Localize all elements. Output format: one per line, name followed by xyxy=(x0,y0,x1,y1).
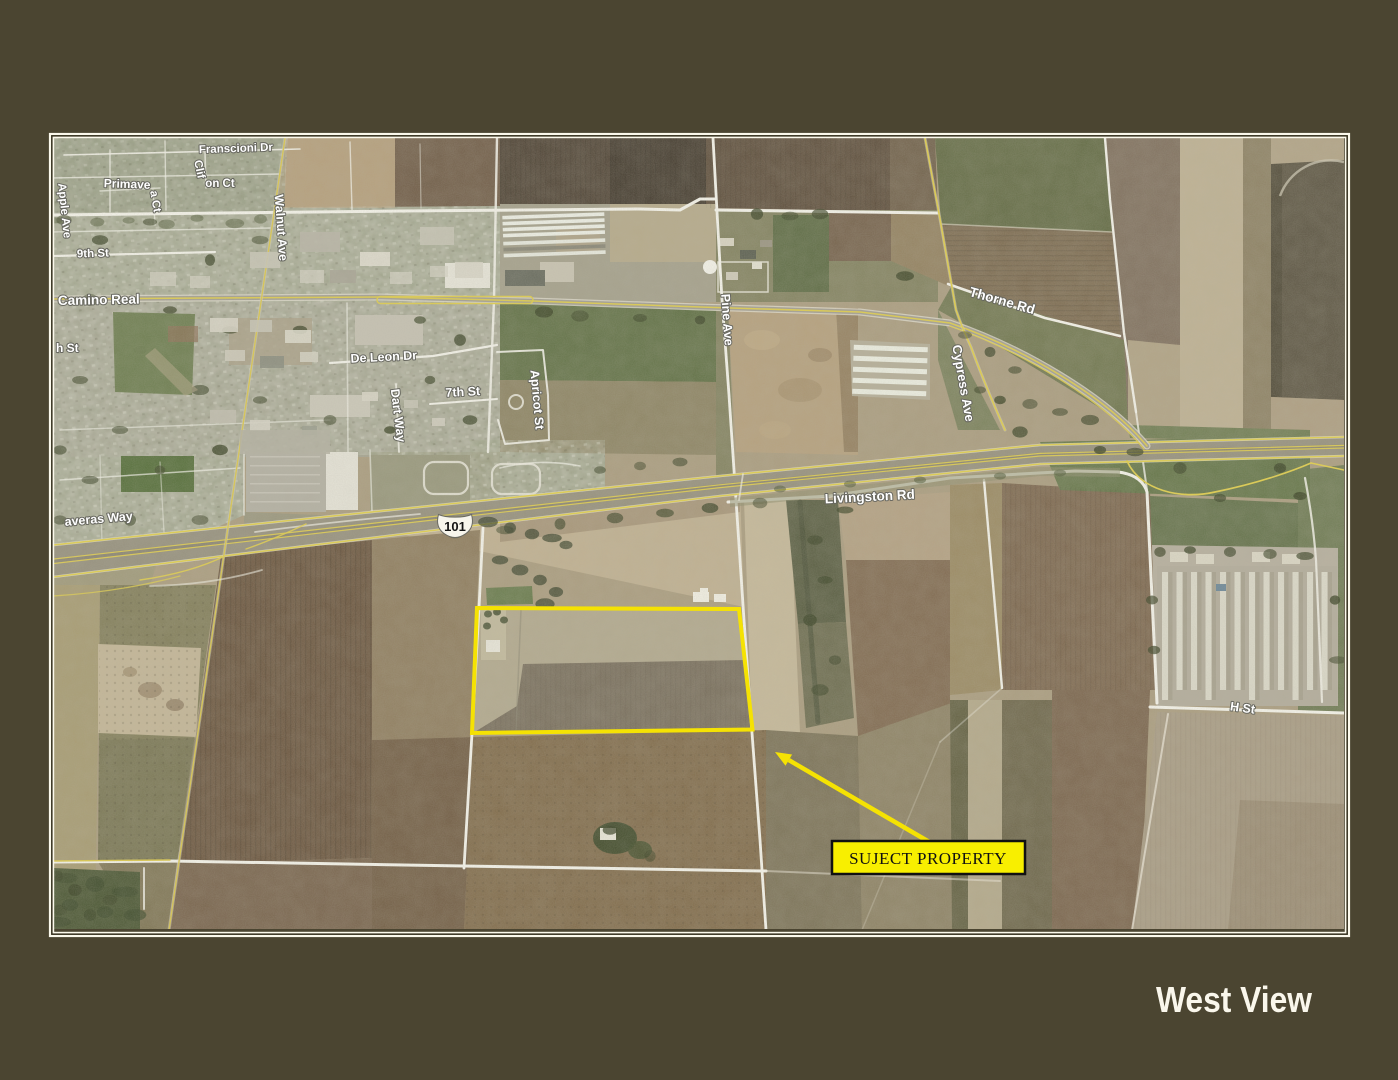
svg-text:9th St: 9th St xyxy=(77,247,110,260)
svg-text:7th St: 7th St xyxy=(445,384,481,400)
svg-text:Camino Real: Camino Real xyxy=(58,292,140,308)
svg-text:on Ct: on Ct xyxy=(205,178,235,190)
svg-text:101: 101 xyxy=(444,519,466,534)
svg-text:SUJECT PROPERTY: SUJECT PROPERTY xyxy=(849,849,1007,868)
svg-text:West View: West View xyxy=(1156,979,1313,1020)
svg-text:Primave: Primave xyxy=(104,176,151,192)
svg-text:h St: h St xyxy=(56,341,79,355)
